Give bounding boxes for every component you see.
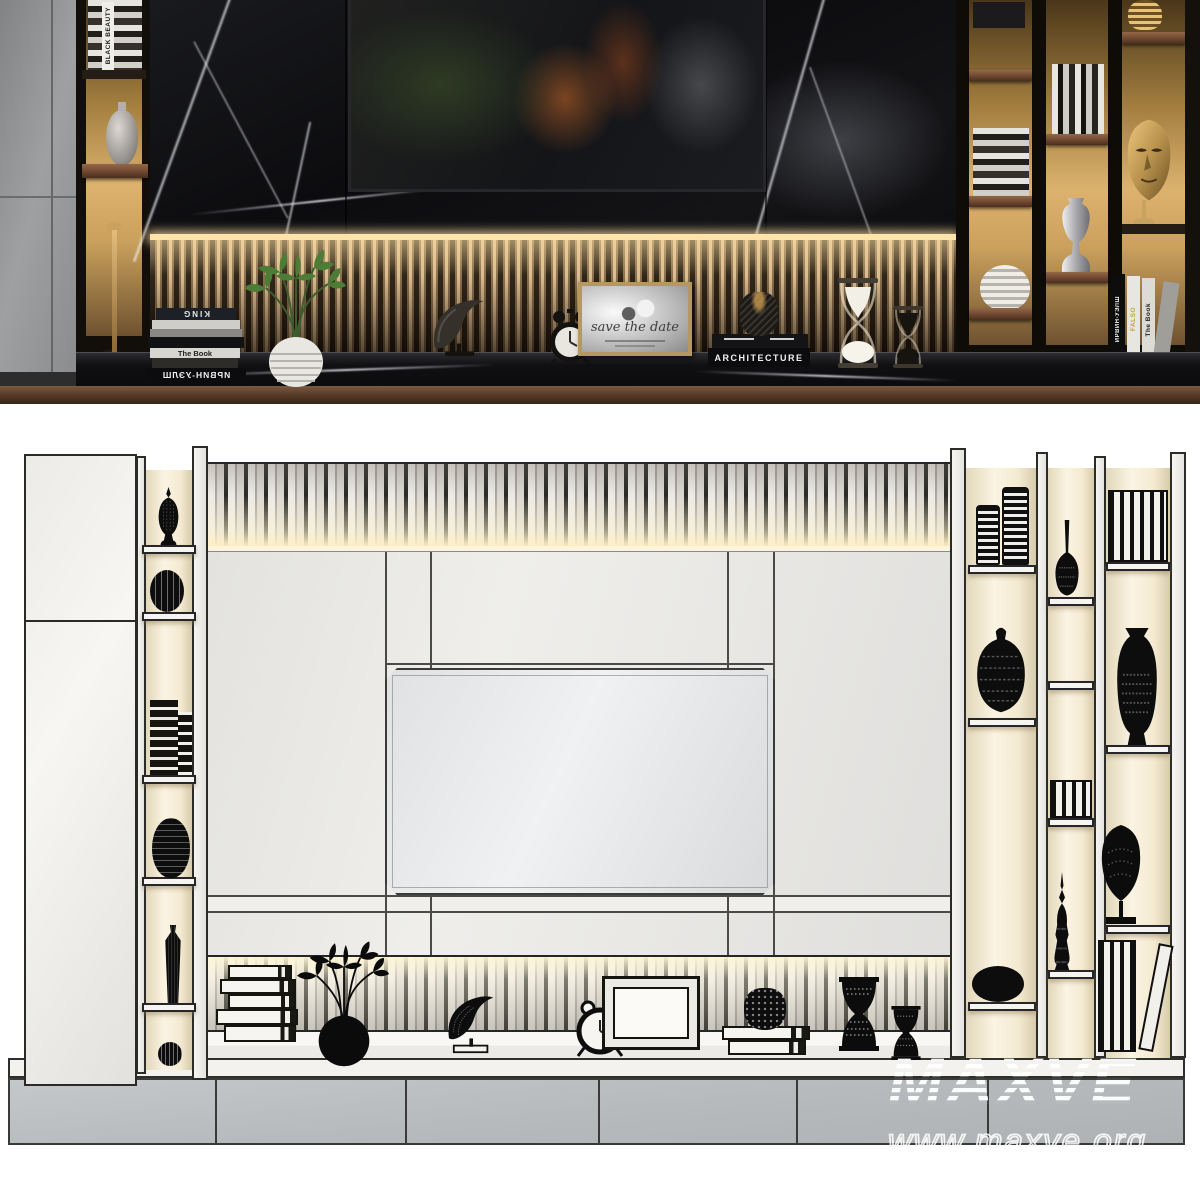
book [216, 1009, 298, 1025]
shelf [142, 545, 196, 554]
shelf [1106, 925, 1170, 934]
shelf [142, 775, 196, 784]
left-cabinet [24, 454, 137, 1086]
striped-cylinder-vase [976, 505, 1000, 565]
book [228, 994, 296, 1009]
tv-bevel [392, 675, 768, 888]
shelf [968, 565, 1036, 574]
sphere-ornament [158, 1042, 182, 1066]
drawer-seam [598, 1080, 600, 1143]
urn-finial [152, 487, 185, 545]
column-panel [950, 448, 966, 1058]
book [220, 979, 296, 994]
book [228, 965, 292, 979]
perforated-candle-holder [744, 988, 786, 1030]
book [224, 1025, 296, 1042]
book-stack [150, 700, 178, 775]
wall-rail [206, 895, 966, 913]
frame-mat [613, 987, 689, 1039]
horn-sculpture-clay [438, 994, 508, 1054]
column-panel [192, 446, 208, 1080]
photo-frame-clay [602, 976, 700, 1050]
shelf [1048, 818, 1094, 827]
cabinet-seam [26, 620, 135, 622]
shelf [142, 877, 196, 886]
wall-seam [385, 663, 775, 665]
round-vase [972, 966, 1024, 1002]
watermark-brand: MAXVE [888, 1048, 1188, 1114]
potted-plant-clay [294, 936, 394, 1068]
shelf [1106, 562, 1170, 571]
shelf [1048, 970, 1094, 979]
shelf [142, 612, 196, 621]
clay-render: MAXVE www.maxve.org [0, 0, 1200, 1200]
spire-finial [1047, 872, 1077, 970]
slat-panel [206, 462, 966, 546]
shelf [1048, 597, 1094, 606]
book-stack [178, 712, 192, 775]
drawer-seam [796, 1080, 798, 1143]
sphere-vase [150, 570, 184, 612]
ginger-jar [968, 622, 1034, 718]
shelf [1106, 745, 1170, 754]
long-neck-vase [1048, 520, 1086, 597]
hourglass-clay-large [838, 976, 880, 1052]
book-row [1108, 490, 1168, 562]
shelf [1048, 681, 1094, 690]
shelf [142, 1003, 196, 1012]
striped-cylinder-vase [1002, 487, 1029, 565]
shelf [968, 718, 1036, 727]
drawer-seam [215, 1080, 217, 1143]
amphora-vase [1108, 628, 1166, 745]
book-row [1050, 780, 1092, 818]
model-preview-canvas: BLACK BEAUTY [0, 0, 1200, 1200]
watermark: MAXVE www.maxve.org [888, 1048, 1188, 1148]
watermark-url: www.maxve.org [888, 1122, 1188, 1160]
tv-panel-blank [385, 668, 775, 895]
mask-sculpture [1098, 823, 1144, 925]
book-row [1098, 940, 1136, 1052]
book [728, 1040, 806, 1055]
column-panel [1170, 452, 1186, 1058]
shelf [968, 1002, 1036, 1011]
drawer-seam [405, 1080, 407, 1143]
round-vase [152, 818, 190, 878]
